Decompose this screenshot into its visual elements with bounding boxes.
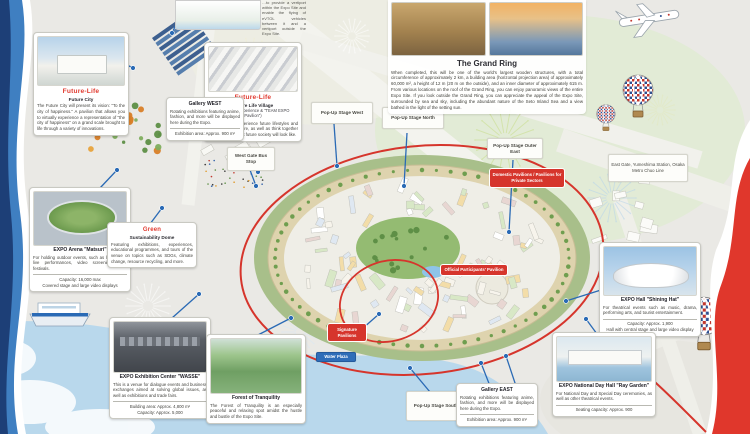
callout-future-city: Future-Life Future City The Future City … <box>33 32 129 136</box>
wasse-body: This is a venue for dialogue events and … <box>113 382 207 399</box>
green-dome-body: Featuring exhibitions, experiences, educ… <box>111 242 193 265</box>
expo-2025-site-map: …to provide a vertiport within the Expo … <box>0 0 750 434</box>
label-popup-stage-outer-east: Pop-Up Stage Outer East <box>487 138 543 159</box>
callout-wasse: EXPO Exhibition Center "WASSE" This is a… <box>109 317 211 419</box>
future-city-body: The Future City will present its vision:… <box>37 103 125 131</box>
badge-signature-pavilions: Signature Pavilions <box>328 324 366 341</box>
ray-garden-body: For National Day and Special Day ceremon… <box>556 391 652 402</box>
future-life-village-photo <box>208 46 298 92</box>
vertiport-photo <box>175 0 261 30</box>
callout-gallery-east: Gallery EAST Rotating exhibitions featur… <box>456 383 538 427</box>
expo-arena-footer2: Covered stage and large video displays <box>33 283 127 289</box>
future-city-title: Future-Life <box>37 88 125 96</box>
shining-hat-body: For theatrical events such as music, dra… <box>603 305 697 316</box>
gallery-east-footer: Exhibition area: Approx. 900 m² <box>460 414 534 422</box>
label-east-gate-station: East Gate, Yumeshima Station, Osaka Metr… <box>608 154 688 182</box>
label-popup-stage-west: Pop-Up Stage West <box>311 102 373 124</box>
gallery-east-title: Gallery EAST <box>460 388 534 394</box>
green-dome-subtitle: Sustainability Dome <box>111 235 193 241</box>
future-city-photo <box>37 36 125 86</box>
wasse-footer2: Capacity: Approx. 5,000 <box>113 410 207 416</box>
grand-ring-body: When completed, this will be one of the … <box>391 70 583 112</box>
grand-ring-photo-aerial <box>391 2 486 56</box>
ray-garden-title: EXPO National Day Hall "Ray Garden" <box>556 384 652 390</box>
ray-garden-photo <box>556 336 652 382</box>
callout-gallery-west: Gallery WEST Rotating exhibitions featur… <box>166 97 244 141</box>
gallery-west-body: Rotating exhibitions featuring anime, fa… <box>170 109 240 126</box>
forest-photo <box>210 338 302 394</box>
grand-ring-photo-sunset <box>489 2 584 56</box>
label-west-gate-bus-stop: West Gate Bus Stop <box>227 147 275 171</box>
label-water-plaza: Water Plaza <box>316 352 356 362</box>
callout-shining-hat: EXPO Hall "Shining Hat" For theatrical e… <box>599 242 701 337</box>
grand-ring-panel: The Grand Ring When completed, this will… <box>388 0 586 114</box>
shining-hat-title: EXPO Hall "Shining Hat" <box>603 298 697 304</box>
gallery-west-footer: Exhibition area: Approx. 900 m² <box>170 128 240 136</box>
future-city-subtitle: Future City <box>37 97 125 103</box>
gallery-east-body: Rotating exhibitions featuring anime, fa… <box>460 395 534 412</box>
vertiport-callout: …to provide a vertiport within the Expo … <box>262 0 306 36</box>
wasse-title: EXPO Exhibition Center "WASSE" <box>113 375 207 381</box>
callout-forest: Forest of Tranquility The Forest of Tran… <box>206 334 306 424</box>
ray-garden-footer1: Seating capacity: Approx. 900 <box>556 407 652 413</box>
shining-hat-photo <box>603 246 697 296</box>
forest-body: The Forest of Tranquility is an especial… <box>210 403 302 420</box>
badge-domestic-pavilions: Domestic Pavilions / Pavilions for Priva… <box>490 169 564 187</box>
callout-ray-garden: EXPO National Day Hall "Ray Garden" For … <box>552 332 656 417</box>
grand-ring-title: The Grand Ring <box>391 59 583 68</box>
callout-green-dome: Green Sustainability Dome Featuring exhi… <box>107 222 197 268</box>
badge-official-participants-pavilion: Official Participants' Pavilion <box>441 265 507 275</box>
wasse-photo <box>113 321 207 373</box>
gallery-west-title: Gallery WEST <box>170 102 240 108</box>
forest-title: Forest of Tranquility <box>210 396 302 402</box>
green-dome-title: Green <box>111 227 193 234</box>
